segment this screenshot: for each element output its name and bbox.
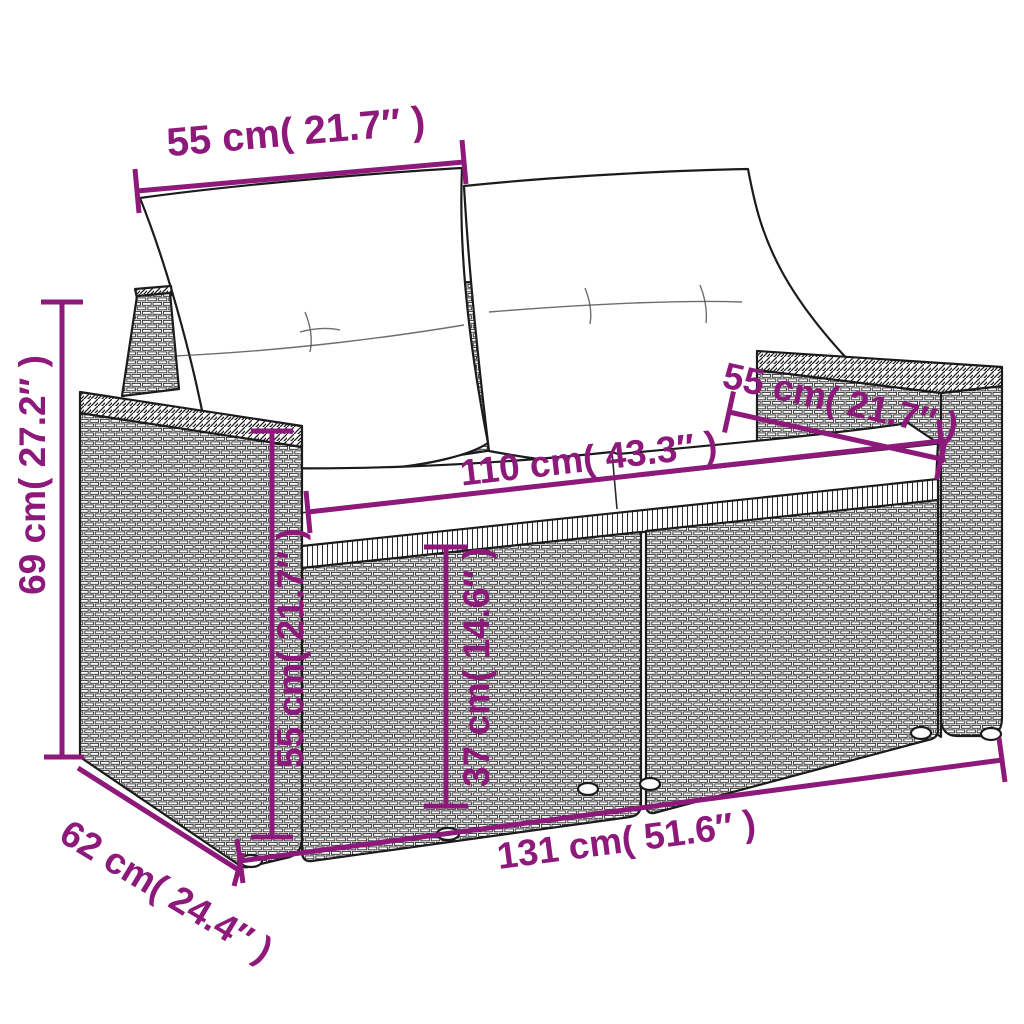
dim-overall-height: 69 cm( 27.2″ ) [12,302,84,757]
left-armrest-front-face [80,413,302,867]
sofa-dimension-drawing: 55 cm( 21.7″ ) 69 cm( 27.2″ ) 55 cm( 21.… [0,0,1024,1024]
back-frame-left-post [122,286,179,396]
sofa-line-art [80,168,1002,867]
seat-base [302,479,938,861]
dim-overall-height-label: 69 cm( 27.2″ ) [12,355,53,595]
foot [640,778,660,790]
foot [578,783,598,795]
seat-box-right [646,500,938,813]
foot [911,727,931,739]
dimension-diagram: 55 cm( 21.7″ ) 69 cm( 27.2″ ) 55 cm( 21.… [0,0,1024,1024]
dim-backrest-width-label: 55 cm( 21.7″ ) [165,99,427,165]
dim-seat-height-label: 37 cm( 14.6″ ) [456,547,497,787]
left-armrest [80,392,302,867]
dim-armrest-height-label: 55 cm( 21.7″ ) [270,528,311,768]
